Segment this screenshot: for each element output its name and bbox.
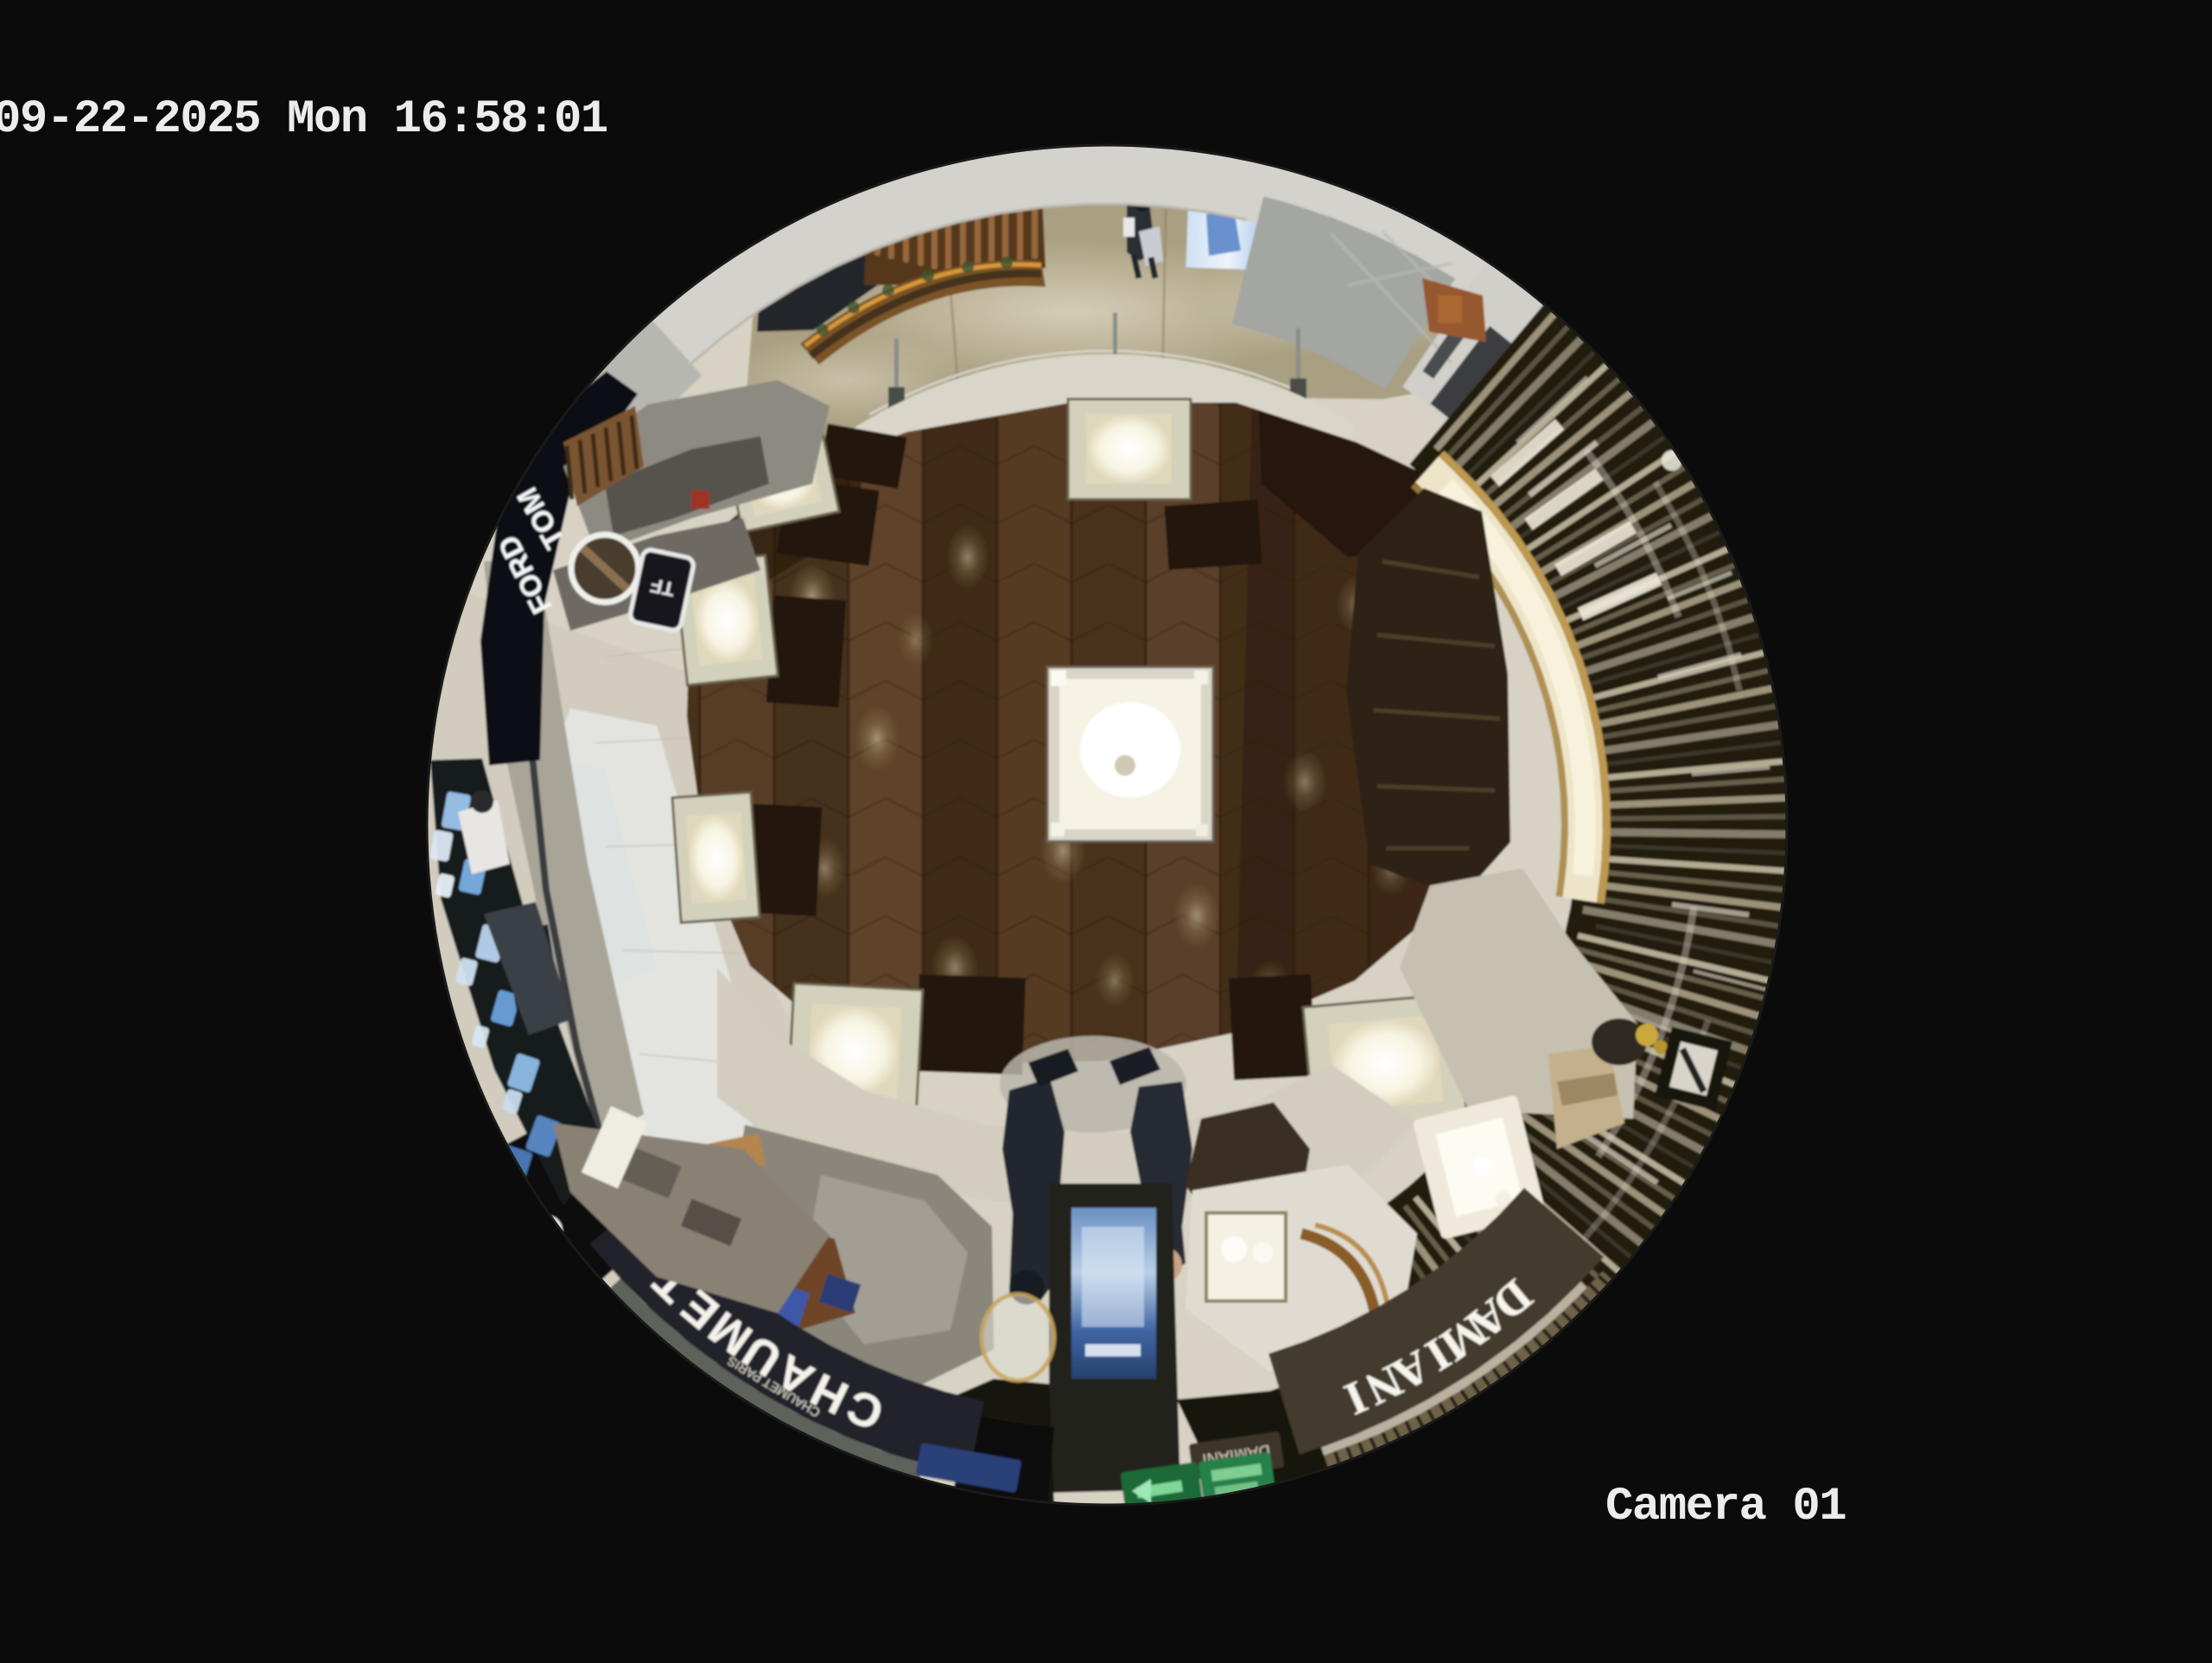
svg-text:Camera 01: Camera 01 bbox=[1605, 1481, 1846, 1533]
svg-text:09-22-2025 Mon 16:58:01: 09-22-2025 Mon 16:58:01 bbox=[0, 93, 607, 146]
